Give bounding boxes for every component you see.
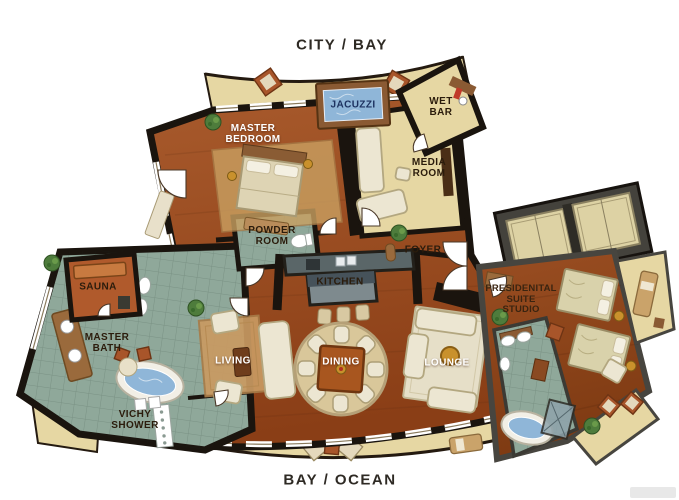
shower-bench xyxy=(149,396,161,408)
round-table xyxy=(441,347,459,365)
jacuzzi-tub xyxy=(316,80,390,129)
bedside-lamp xyxy=(626,361,636,371)
bar-stool xyxy=(337,307,350,322)
floorplan-svg xyxy=(0,0,679,500)
side-table xyxy=(653,317,665,329)
shower-bench xyxy=(135,398,147,410)
bedside-lamp xyxy=(228,172,237,181)
stove xyxy=(306,259,320,270)
lounge-furniture xyxy=(403,306,489,413)
bedside-lamp xyxy=(304,160,313,169)
plant xyxy=(205,114,221,130)
bath-stool xyxy=(137,347,151,361)
watermark xyxy=(630,487,676,498)
bedside-lamp xyxy=(614,311,624,321)
bar-stool xyxy=(356,305,370,321)
plant xyxy=(188,300,204,316)
bar-sink xyxy=(459,97,467,105)
plant xyxy=(391,225,407,241)
plant xyxy=(584,418,600,434)
dining-set xyxy=(295,323,387,415)
sauna-heater xyxy=(118,296,130,309)
kitchen-sink xyxy=(336,257,345,266)
armchair xyxy=(210,310,239,334)
kitchen-sink xyxy=(347,256,356,265)
toilet xyxy=(500,357,510,371)
plant xyxy=(44,255,60,271)
plant xyxy=(492,309,508,325)
coffee-table xyxy=(233,347,251,376)
ottoman xyxy=(119,358,137,376)
sauna-bench xyxy=(74,262,127,279)
floor-plan: CITY / BAY BAY / OCEAN JACUZZI WET BAR M… xyxy=(0,0,679,500)
bar-stool xyxy=(317,309,331,325)
console-table xyxy=(385,244,395,262)
